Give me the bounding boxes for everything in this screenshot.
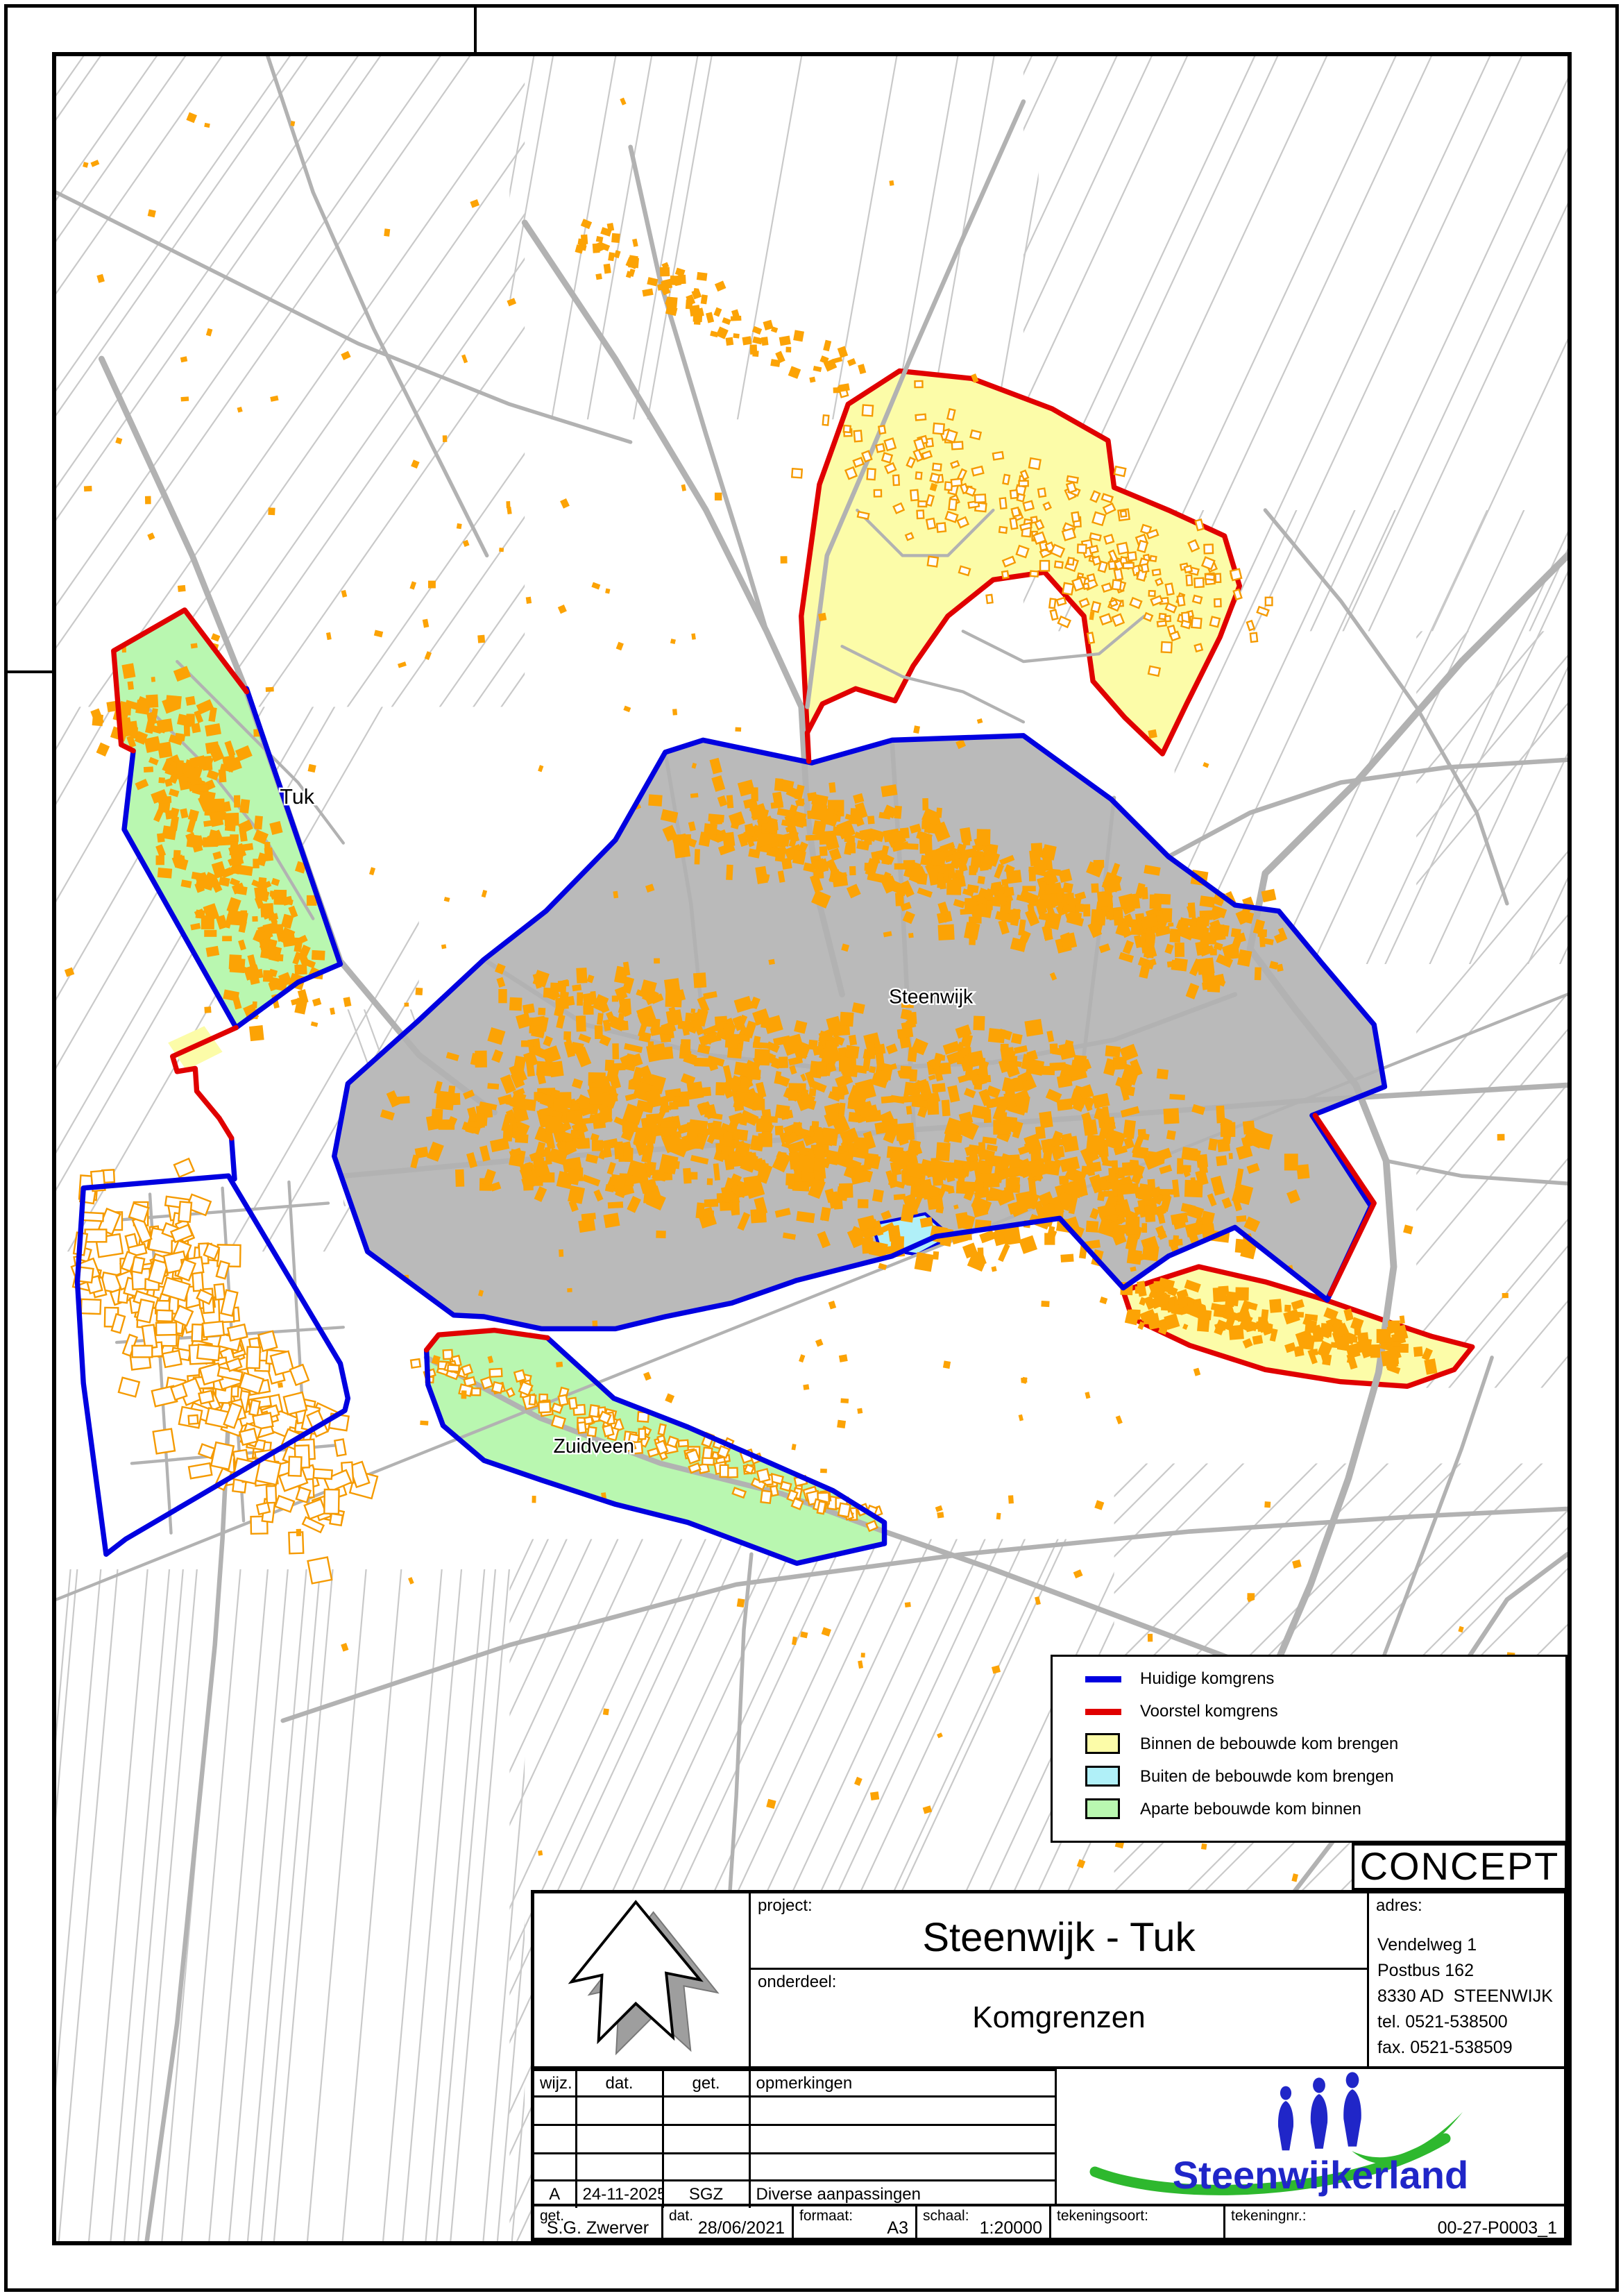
revision-header-row: wijz.dat.get.opmerkingen: [534, 2070, 1055, 2097]
revision-cell: [749, 2154, 1055, 2181]
drawing-info-row: get.S.G. Zwerverdat.28/06/2021formaat:A3…: [534, 2204, 1564, 2238]
info-label: formaat:: [799, 2208, 853, 2225]
north-arrow-cell: [534, 1893, 751, 2066]
adres-lines: Vendelweg 1 Postbus 162 8330 AD STEENWIJ…: [1377, 1932, 1553, 2061]
revision-cell: [749, 2097, 1055, 2125]
revision-cell: dat.: [576, 2070, 663, 2097]
revision-row: [534, 2097, 1055, 2125]
revision-cell: [663, 2097, 749, 2125]
revision-table: wijz.dat.get.opmerkingenA24-11-2025SGZDi…: [534, 2066, 1055, 2204]
north-arrow-icon: [534, 1893, 751, 2066]
info-value: 00-27-P0003_1: [1438, 2218, 1557, 2238]
legend-swatch-area: [1085, 1766, 1120, 1787]
adres-label: adres:: [1376, 1896, 1422, 1916]
onderdeel-title: Komgrenzen: [751, 2000, 1367, 2035]
revision-cell: wijz.: [534, 2070, 576, 2097]
adres-cell: adres: Vendelweg 1 Postbus 162 8330 AD S…: [1367, 1893, 1564, 2066]
info-value: S.G. Zwerver: [534, 2218, 661, 2238]
legend-item: Buiten de bebouwde kom brengen: [1053, 1762, 1565, 1792]
revision-cell: [576, 2097, 663, 2125]
legend-swatch-area: [1085, 1733, 1120, 1754]
title-block: project: Steenwijk - Tuk onderdeel: Komg…: [531, 1890, 1567, 2241]
info-cell-tekeningsoort: tekeningsoort:: [1049, 2206, 1223, 2240]
revision-cell: [534, 2154, 576, 2181]
legend-swatch-line: [1085, 1709, 1121, 1715]
info-label: dat.: [669, 2208, 693, 2225]
info-value: 28/06/2021: [698, 2218, 785, 2238]
revision-cell: [663, 2125, 749, 2154]
legend: Huidige komgrensVoorstel komgrensBinnen …: [1051, 1655, 1567, 1843]
fold-tick-top: [474, 4, 477, 54]
legend-item: Voorstel komgrens: [1053, 1696, 1565, 1727]
legend-label: Voorstel komgrens: [1140, 1696, 1278, 1727]
legend-swatch-area: [1085, 1798, 1120, 1819]
drawing-page: TukSteenwijkZuidveen Huidige komgrensVoo…: [0, 0, 1623, 2296]
revision-cell: [576, 2154, 663, 2181]
revision-cell: [534, 2125, 576, 2154]
fold-tick-left: [4, 670, 54, 673]
project-label: project:: [758, 1896, 813, 1916]
info-value: 1:20000: [980, 2218, 1042, 2238]
revision-cell: [663, 2154, 749, 2181]
concept-stamp: CONCEPT: [1352, 1843, 1567, 1891]
revision-cell: [749, 2125, 1055, 2154]
voorstel-komgrens-line: [807, 732, 808, 761]
legend-label: Huidige komgrens: [1140, 1664, 1274, 1694]
legend-label: Binnen de bebouwde kom brengen: [1140, 1729, 1398, 1759]
revision-cell: [576, 2125, 663, 2154]
info-cell-get: get.S.G. Zwerver: [534, 2206, 661, 2240]
info-cell-dat: dat.28/06/2021: [661, 2206, 792, 2240]
huidige-komgrens-line: [232, 1138, 235, 1179]
info-label: schaal:: [923, 2208, 969, 2225]
logo-person-icon: [1343, 2072, 1361, 2146]
logo-person-icon: [1311, 2077, 1327, 2148]
place-label-tuk: Tuk: [280, 785, 314, 809]
project-title: Steenwijk - Tuk: [751, 1914, 1367, 1961]
place-label-steenwijk: Steenwijk: [889, 986, 974, 1008]
legend-label: Aparte bebouwde kom binnen: [1140, 1794, 1361, 1825]
legend-item: Binnen de bebouwde kom brengen: [1053, 1729, 1565, 1759]
legend-label: Buiten de bebouwde kom brengen: [1140, 1762, 1394, 1792]
info-cell-formaat: formaat:A3: [792, 2206, 915, 2240]
info-label: tekeningsoort:: [1057, 2208, 1148, 2225]
logo-person-icon: [1278, 2086, 1293, 2151]
revision-row: [534, 2154, 1055, 2181]
onderdeel-cell: onderdeel: Komgrenzen: [751, 1970, 1367, 2066]
municipality-logo-cell: Steenwijkerland: [1055, 2066, 1564, 2204]
legend-item: Aparte bebouwde kom binnen: [1053, 1794, 1565, 1825]
steenwijkerland-logo: Steenwijkerland: [1057, 2069, 1566, 2206]
legend-item: Huidige komgrens: [1053, 1664, 1565, 1694]
info-cell-tekeningnr: tekeningnr.:00-27-P0003_1: [1223, 2206, 1564, 2240]
project-cell: project: Steenwijk - Tuk: [751, 1893, 1367, 1970]
revision-cell: [534, 2097, 576, 2125]
revision-cell: get.: [663, 2070, 749, 2097]
onderdeel-label: onderdeel:: [758, 1973, 836, 1992]
place-label-zuidveen: Zuidveen: [554, 1435, 634, 1458]
info-cell-schaal: schaal:1:20000: [915, 2206, 1049, 2240]
logo-wordmark: Steenwijkerland: [1173, 2153, 1468, 2197]
legend-swatch-line: [1085, 1676, 1121, 1682]
revision-cell: opmerkingen: [749, 2070, 1055, 2097]
info-value: A3: [887, 2218, 908, 2238]
info-label: tekeningnr.:: [1231, 2208, 1307, 2225]
revision-row: [534, 2125, 1055, 2154]
